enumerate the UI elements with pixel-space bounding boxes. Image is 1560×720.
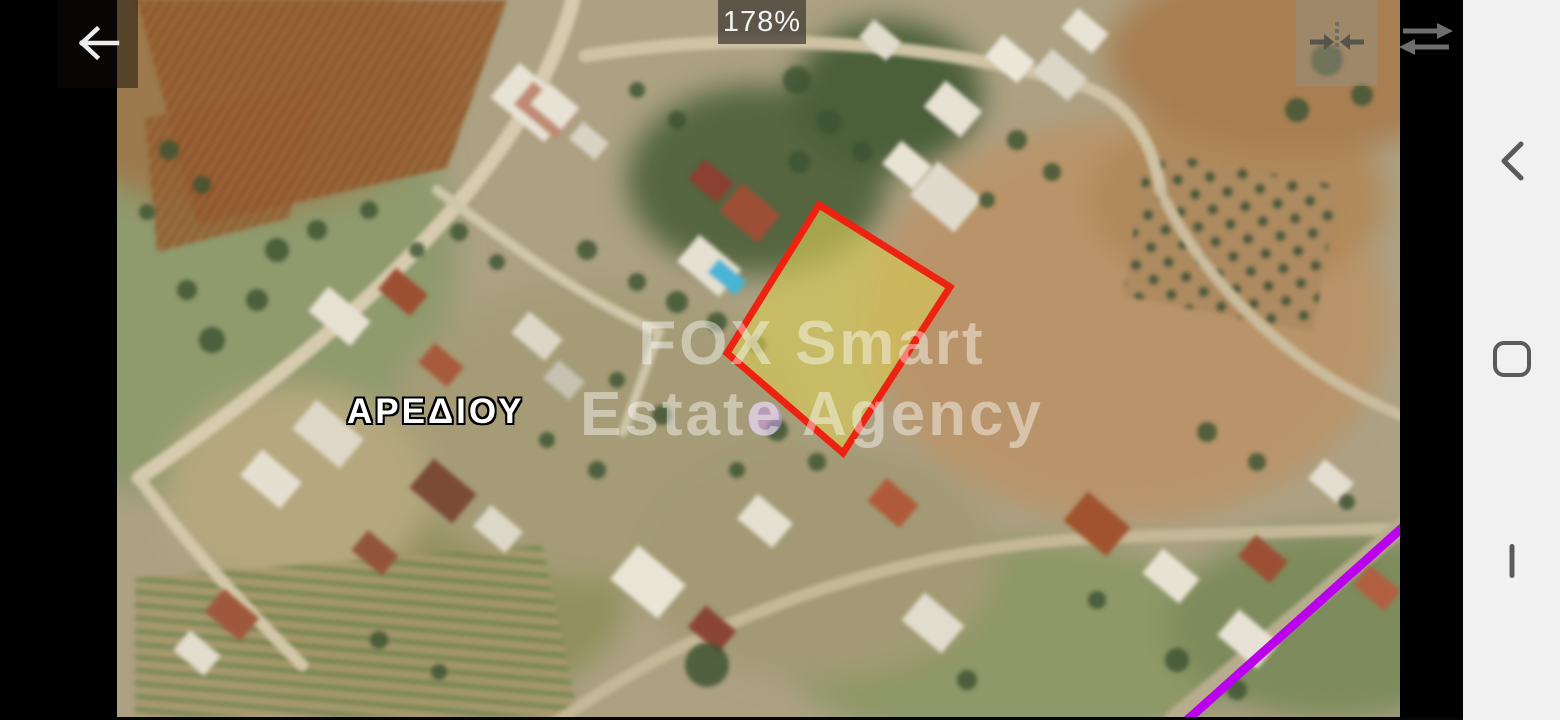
zoom-level-badge: 178% xyxy=(718,0,806,44)
recent-apps-icon xyxy=(1509,544,1514,578)
back-button[interactable] xyxy=(58,0,138,88)
nav-back-button[interactable] xyxy=(1499,140,1525,185)
home-icon xyxy=(1493,341,1531,377)
satellite-imagery xyxy=(117,0,1400,717)
arrow-left-icon xyxy=(76,25,120,64)
screen: ΑΡΕΔΙΟΥ FOX Smart Estate Agency 178% xyxy=(0,0,1560,720)
place-label: ΑΡΕΔΙΟΥ xyxy=(347,392,524,432)
zoom-level-text: 178% xyxy=(723,6,801,39)
marker-dot xyxy=(748,402,782,436)
swap-horizontal-icon xyxy=(1395,20,1457,61)
map-viewport[interactable]: ΑΡΕΔΙΟΥ FOX Smart Estate Agency xyxy=(117,0,1400,717)
swap-arrows-button[interactable] xyxy=(1394,20,1458,60)
chevron-back-icon xyxy=(1499,170,1525,185)
nav-home-button[interactable] xyxy=(1493,341,1531,377)
nav-recents-button[interactable] xyxy=(1509,544,1514,578)
android-nav-bar xyxy=(1463,0,1560,720)
letterbox-right xyxy=(1400,0,1463,720)
letterbox-left xyxy=(0,0,117,720)
fit-width-button[interactable] xyxy=(1296,0,1377,86)
collapse-horizontal-icon xyxy=(1308,19,1366,68)
